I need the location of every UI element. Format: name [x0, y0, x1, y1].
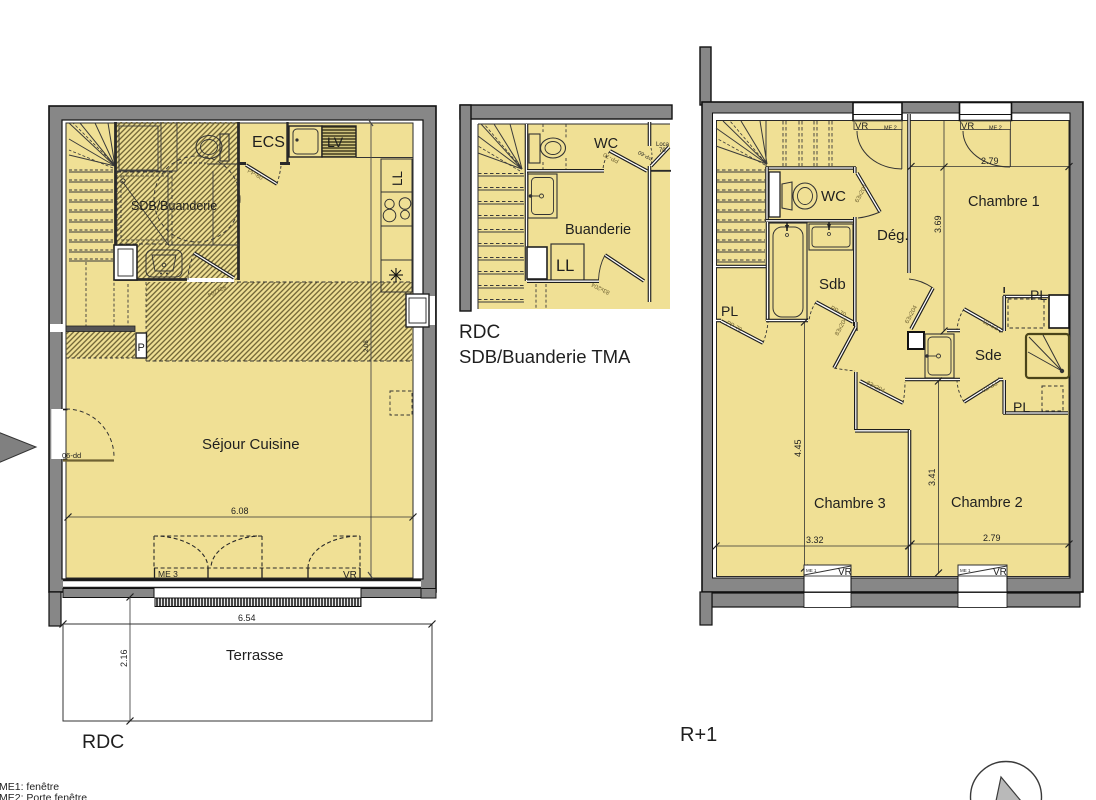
svg-text:Buanderie: Buanderie	[565, 222, 631, 238]
svg-text:Terrasse: Terrasse	[226, 647, 284, 664]
svg-text:Sde: Sde	[975, 347, 1002, 364]
svg-text:ME 3: ME 3	[158, 569, 178, 579]
svg-text:70: 70	[659, 148, 666, 154]
svg-text:VR: VR	[838, 567, 852, 578]
svg-text:WC: WC	[594, 136, 618, 152]
svg-text:6.54: 6.54	[238, 613, 256, 623]
svg-text:06-dd: 06-dd	[62, 451, 81, 460]
svg-text:SDB/Buanderie TMA: SDB/Buanderie TMA	[459, 346, 631, 367]
svg-text:ME2: Porte fenêtre: ME2: Porte fenêtre	[0, 792, 87, 800]
svg-text:VR: VR	[961, 121, 974, 132]
svg-text:RDC: RDC	[459, 322, 500, 343]
svg-text:3.69: 3.69	[933, 215, 943, 233]
svg-text:3.32: 3.32	[806, 535, 824, 545]
svg-text:Chambre 3: Chambre 3	[814, 496, 886, 512]
svg-text:Dég.: Dég.	[877, 227, 909, 244]
svg-text:LV: LV	[327, 134, 344, 150]
svg-text:6.08: 6.08	[231, 506, 249, 516]
svg-text:Séjour Cuisine: Séjour Cuisine	[202, 436, 300, 453]
svg-text:ECS: ECS	[252, 134, 285, 151]
svg-text:P: P	[138, 342, 145, 354]
svg-text:ME 1: ME 1	[806, 568, 817, 573]
svg-text:ME 1: ME 1	[960, 568, 971, 573]
svg-text:Sdb: Sdb	[819, 276, 846, 293]
svg-text:LL: LL	[556, 257, 574, 275]
svg-text:3.41: 3.41	[927, 468, 937, 486]
svg-text:RDC: RDC	[82, 731, 124, 753]
svg-text:Chambre 2: Chambre 2	[951, 495, 1023, 511]
svg-text:PL: PL	[1030, 287, 1047, 303]
svg-text:WC: WC	[821, 188, 846, 205]
svg-text:ME 2: ME 2	[989, 126, 1002, 132]
svg-text:PL: PL	[721, 303, 738, 319]
svg-text:VR: VR	[993, 567, 1007, 578]
svg-text:2.79: 2.79	[981, 156, 999, 166]
svg-text:R+1: R+1	[680, 724, 717, 746]
svg-text:2.79: 2.79	[983, 533, 1001, 543]
svg-text:LL: LL	[390, 170, 405, 186]
svg-text:SDB/Buanderie: SDB/Buanderie	[131, 199, 217, 213]
svg-text:PL: PL	[1013, 399, 1030, 415]
svg-text:4.45: 4.45	[793, 439, 803, 457]
svg-text:Chambre 1: Chambre 1	[968, 194, 1040, 210]
svg-text:ME 2: ME 2	[884, 126, 897, 132]
svg-text:2.08: 2.08	[364, 340, 370, 352]
svg-text:2.16: 2.16	[119, 649, 129, 667]
svg-text:VR: VR	[855, 121, 868, 132]
